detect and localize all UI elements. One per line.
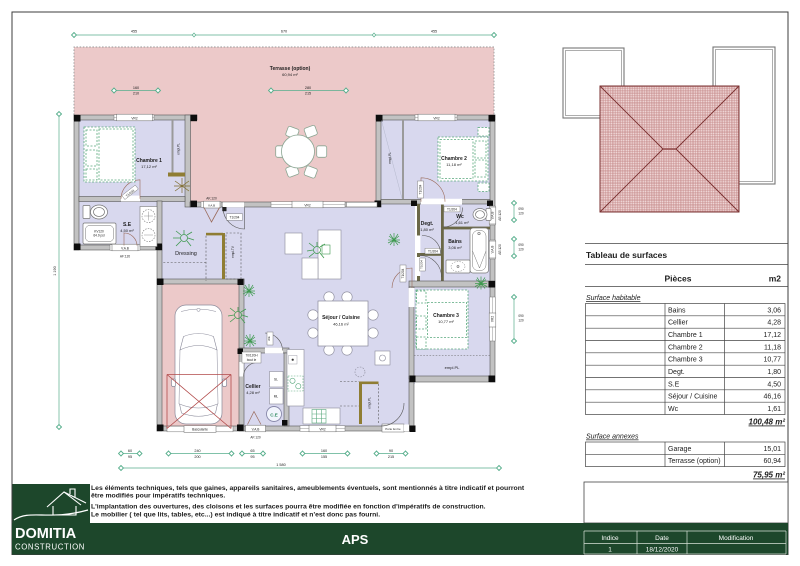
svg-text:100,48 m²: 100,48 m²	[749, 418, 786, 427]
svg-text:Surface habitable: Surface habitable	[586, 295, 641, 302]
svg-text:70/120H: 70/120H	[245, 354, 258, 358]
svg-text:Degt.: Degt.	[668, 369, 685, 376]
svg-text:210: 210	[133, 92, 139, 96]
svg-text:Garage: Garage	[668, 446, 691, 453]
svg-text:215: 215	[305, 92, 311, 96]
svg-text:SL: SL	[274, 378, 278, 382]
svg-text:215: 215	[388, 455, 394, 459]
svg-text:Terrasse (option): Terrasse (option)	[668, 458, 721, 465]
svg-text:11,18: 11,18	[764, 344, 781, 351]
svg-text:4,28: 4,28	[767, 320, 781, 327]
svg-text:Bains: Bains	[668, 307, 686, 314]
svg-text:ML: ML	[274, 395, 279, 399]
svg-text:T1/204: T1/204	[401, 268, 405, 278]
svg-text:Cellier: Cellier	[668, 320, 689, 327]
svg-text:T1/204: T1/204	[230, 216, 240, 220]
svg-text:Séjour / Cuisine: Séjour / Cuisine	[668, 394, 718, 401]
svg-text:46,16 m²: 46,16 m²	[333, 322, 349, 327]
svg-text:empl.PL: empl.PL	[445, 365, 460, 370]
svg-text:Modification: Modification	[719, 535, 754, 542]
svg-text:T1/204: T1/204	[419, 184, 423, 194]
svg-text:455: 455	[431, 30, 437, 34]
svg-text:empl.PL: empl.PL	[388, 152, 392, 164]
svg-text:090: 090	[518, 207, 524, 211]
svg-text:Porte fen be: Porte fen be	[385, 427, 401, 431]
svg-text:Wc: Wc	[668, 406, 679, 413]
svg-text:Les éléments techniques, tels: Les éléments techniques, tels que gaines…	[91, 485, 525, 492]
svg-text:1,80: 1,80	[767, 369, 781, 376]
svg-text:AK:120: AK:120	[206, 197, 217, 201]
svg-text:CONSTRUCTION: CONSTRUCTION	[15, 543, 85, 552]
svg-text:1: 1	[608, 547, 612, 554]
svg-text:T1/204: T1/204	[428, 250, 438, 254]
svg-text:95: 95	[250, 455, 254, 459]
svg-text:90: 90	[389, 449, 393, 453]
svg-text:Tableau de surfaces: Tableau de surfaces	[586, 250, 667, 260]
svg-text:L'implantation des ouvertures,: L'implantation des ouvertures, des clois…	[91, 504, 486, 511]
svg-text:Chambre 3: Chambre 3	[668, 357, 703, 364]
svg-text:240: 240	[194, 449, 200, 453]
svg-text:S.E: S.E	[668, 381, 680, 388]
svg-text:APS: APS	[342, 532, 369, 547]
svg-text:4,50: 4,50	[767, 381, 781, 388]
svg-text:AF:120: AF:120	[250, 436, 261, 440]
svg-text:T1/204: T1/204	[420, 260, 424, 269]
svg-text:15,01: 15,01	[763, 446, 781, 453]
svg-text:200: 200	[194, 455, 200, 459]
svg-text:AE:120: AE:120	[498, 210, 502, 221]
svg-text:10,77 m²: 10,77 m²	[438, 319, 454, 324]
svg-text:Surface annexes: Surface annexes	[586, 434, 639, 441]
svg-text:090: 090	[518, 243, 524, 247]
svg-text:65: 65	[250, 449, 254, 453]
svg-text:120: 120	[518, 248, 524, 252]
svg-text:1 190: 1 190	[53, 266, 57, 276]
svg-text:V.A.B: V.A.B	[252, 427, 260, 431]
svg-text:Dressing: Dressing	[175, 251, 197, 257]
svg-text:4,50 m²: 4,50 m²	[120, 228, 134, 233]
svg-text:V.A.B: V.A.B	[491, 246, 495, 254]
svg-text:95: 95	[128, 455, 132, 459]
svg-text:1,61: 1,61	[767, 406, 781, 413]
svg-text:4,28 m²: 4,28 m²	[246, 390, 260, 395]
svg-text:T1/204: T1/204	[447, 208, 457, 212]
svg-text:10,77: 10,77	[763, 357, 781, 364]
svg-text:Chambre 1: Chambre 1	[668, 332, 703, 339]
svg-text:1,80 m²: 1,80 m²	[420, 227, 434, 232]
svg-text:bout le: bout le	[247, 358, 257, 362]
svg-text:670: 670	[281, 30, 287, 34]
svg-text:1 580: 1 580	[276, 463, 286, 467]
svg-text:empl.PL: empl.PL	[368, 397, 372, 409]
svg-text:AE:120: AE:120	[498, 244, 502, 255]
svg-text:280: 280	[305, 86, 311, 90]
svg-text:75,95 m²: 75,95 m²	[753, 471, 785, 480]
svg-text:A/E: A/E	[267, 336, 271, 341]
svg-text:Séjour / Cuisine: Séjour / Cuisine	[322, 315, 360, 321]
svg-text:VR2: VR2	[433, 117, 439, 121]
svg-text:090: 090	[518, 314, 524, 318]
svg-text:m2: m2	[769, 274, 782, 284]
svg-text:1,61 m²: 1,61 m²	[455, 220, 469, 225]
svg-text:60: 60	[128, 449, 132, 453]
svg-text:VR2: VR2	[131, 117, 137, 121]
svg-text:empl.PL: empl.PL	[177, 143, 181, 155]
svg-text:11,18 m²: 11,18 m²	[446, 162, 462, 167]
svg-text:60,94 m²: 60,94 m²	[282, 72, 298, 77]
svg-text:120: 120	[518, 212, 524, 216]
svg-text:160: 160	[133, 86, 139, 90]
svg-text:Chambre 2: Chambre 2	[668, 344, 703, 351]
svg-text:Le mobilier ( tel que lits, ta: Le mobilier ( tel que lits, tables, etc.…	[91, 511, 380, 518]
svg-text:V.A.B: V.A.B	[208, 203, 215, 207]
svg-text:3,06 m²: 3,06 m²	[448, 245, 462, 250]
svg-text:être modifiés pour impératifs: être modifiés pour impératifs techniques…	[91, 493, 225, 500]
svg-text:empl.TV: empl.TV	[231, 245, 235, 258]
svg-text:Pièces: Pièces	[665, 274, 692, 284]
svg-text:VR2: VR2	[491, 316, 495, 322]
svg-text:155: 155	[321, 455, 327, 459]
svg-text:VR2: VR2	[319, 427, 325, 431]
svg-text:3,06: 3,06	[767, 307, 781, 314]
svg-text:Date: Date	[655, 535, 669, 542]
svg-text:18/12/2020: 18/12/2020	[646, 547, 679, 554]
svg-text:Basculante: Basculante	[192, 428, 208, 432]
svg-text:Indice: Indice	[601, 535, 619, 542]
svg-text:64.9 psl: 64.9 psl	[93, 234, 104, 238]
svg-text:DOMITIA: DOMITIA	[15, 526, 77, 542]
svg-text:160: 160	[321, 449, 327, 453]
svg-text:120: 120	[518, 319, 524, 323]
svg-text:17,12: 17,12	[763, 332, 781, 339]
svg-text:17,12 m²: 17,12 m²	[141, 164, 157, 169]
svg-text:46,16: 46,16	[763, 394, 781, 401]
svg-text:C.E: C.E	[270, 413, 278, 418]
svg-text:V.A.B: V.A.B	[121, 246, 129, 250]
svg-text:VR2: VR2	[304, 204, 310, 208]
svg-text:AF:120: AF:120	[120, 255, 131, 259]
svg-text:455: 455	[131, 30, 137, 34]
svg-text:60,94: 60,94	[763, 458, 781, 465]
